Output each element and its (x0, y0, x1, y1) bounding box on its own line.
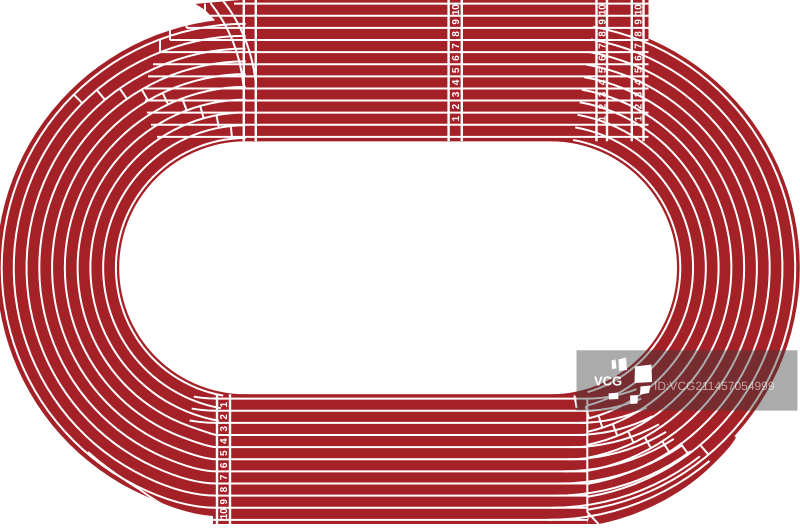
svg-text:1: 1 (219, 401, 230, 407)
svg-text:1: 1 (633, 115, 644, 121)
svg-text:8: 8 (219, 486, 230, 492)
svg-text:7: 7 (451, 43, 462, 49)
svg-text:9: 9 (219, 498, 230, 504)
svg-text:3: 3 (597, 91, 608, 97)
svg-text:6: 6 (633, 55, 644, 61)
svg-text:6: 6 (451, 55, 462, 61)
svg-text:7: 7 (597, 43, 608, 49)
svg-text:8: 8 (451, 31, 462, 37)
svg-text:6: 6 (597, 55, 608, 61)
svg-text:8: 8 (597, 31, 608, 37)
svg-text:4: 4 (597, 79, 608, 85)
svg-text:5: 5 (219, 450, 230, 456)
svg-text:7: 7 (219, 474, 230, 480)
svg-text:10: 10 (597, 4, 608, 16)
svg-text:6: 6 (219, 462, 230, 468)
svg-text:3: 3 (451, 91, 462, 97)
svg-text:3: 3 (633, 91, 644, 97)
svg-text:VCG: VCG (594, 374, 622, 389)
svg-text:10: 10 (219, 508, 230, 520)
svg-text:9: 9 (451, 19, 462, 25)
svg-text:8: 8 (633, 31, 644, 37)
svg-text:5: 5 (633, 67, 644, 73)
svg-text:5: 5 (597, 67, 608, 73)
svg-text:2: 2 (597, 103, 608, 109)
svg-text:2: 2 (451, 103, 462, 109)
svg-text:4: 4 (451, 79, 462, 85)
svg-text:4: 4 (219, 438, 230, 444)
svg-text:1: 1 (451, 115, 462, 121)
svg-text:10: 10 (451, 4, 462, 16)
svg-text:5: 5 (451, 67, 462, 73)
svg-text:9: 9 (633, 19, 644, 25)
svg-text:10: 10 (633, 4, 644, 16)
svg-text:2: 2 (633, 103, 644, 109)
svg-text:9: 9 (597, 19, 608, 25)
svg-text:1: 1 (597, 115, 608, 121)
svg-text:ID:VCG211457054999: ID:VCG211457054999 (654, 379, 775, 393)
svg-text:4: 4 (633, 79, 644, 85)
svg-text:3: 3 (219, 426, 230, 432)
svg-text:7: 7 (633, 43, 644, 49)
svg-text:2: 2 (219, 414, 230, 420)
